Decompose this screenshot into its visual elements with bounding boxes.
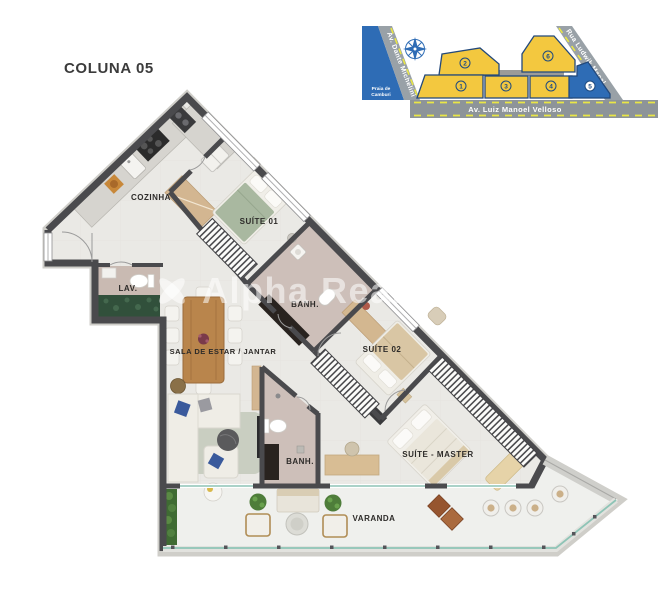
room-label-varanda: VARANDA [353,514,396,523]
room-label-sala: SALA DE ESTAR / JANTAR [170,347,277,356]
landmark-praia-line2: Camburi [371,92,390,98]
landmark-praia-line1: Praia de [372,86,391,92]
building-1 [417,75,483,98]
varanda-chair-1 [246,514,270,536]
pouf [217,429,239,451]
varanda-chair-2 [323,515,347,537]
building-number-3: 3 [504,83,508,90]
site-map: Praia de Camburi Av. Dante Michelini Rua… [362,26,658,118]
room-label-suite-master: SUÍTE - MASTER [402,450,473,459]
varanda-bench [277,489,319,512]
street-label-velloso: Av. Luiz Manoel Velloso [468,105,561,114]
room-label-suite-01: SUÍTE 01 [240,217,279,226]
building-number-6: 6 [546,53,550,60]
building-number-5: 5 [588,83,592,90]
room-label-banh-1: BANH. [291,300,319,309]
suite2-chair [426,305,447,326]
building-2 [439,48,499,75]
building-number-1: 1 [459,83,463,90]
room-label-suite-02: SUÍTE 02 [363,345,402,354]
master-desk [325,455,379,475]
compass-icon [403,37,427,61]
building-number-4: 4 [549,83,553,90]
basket [171,379,186,394]
room-label-lav: LAV. [119,284,138,293]
building-number-2: 2 [463,60,467,67]
master-desk-chair [345,442,359,456]
lav-sink [102,268,116,278]
room-label-banh-2: BANH. [286,457,314,466]
room-label-cozinha: COZINHA [131,193,171,202]
page: { "title": "COLUNA 05", "watermark": { "… [0,0,658,600]
